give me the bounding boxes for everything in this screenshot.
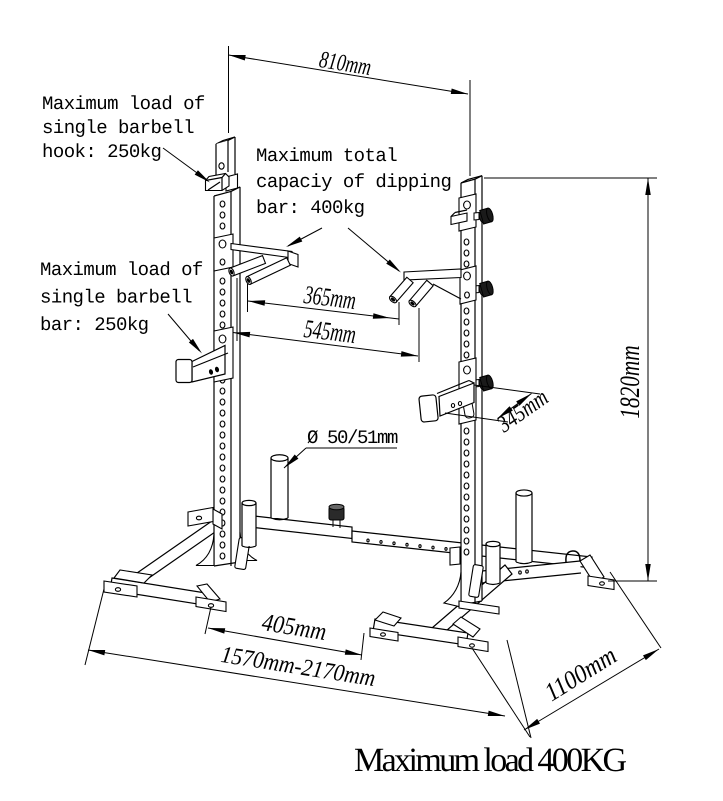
svg-text:1820mm: 1820mm — [615, 345, 646, 418]
svg-text:bar: 250kg: bar: 250kg — [40, 314, 149, 336]
svg-text:capaciy of dipping: capaciy of dipping — [256, 171, 451, 193]
svg-text:Ø 50/51mm: Ø 50/51mm — [307, 427, 398, 449]
svg-text:hook: 250kg: hook: 250kg — [42, 141, 161, 163]
svg-text:Maximum load 400KG: Maximum load 400KG — [354, 742, 627, 779]
svg-text:Maximum load of: Maximum load of — [42, 93, 205, 115]
svg-text:single barbell: single barbell — [40, 287, 192, 309]
svg-text:Maximum total: Maximum total — [256, 145, 397, 167]
svg-text:bar: 400kg: bar: 400kg — [256, 197, 365, 219]
svg-text:single barbell: single barbell — [42, 117, 194, 139]
svg-text:Maximum load of: Maximum load of — [40, 259, 203, 281]
